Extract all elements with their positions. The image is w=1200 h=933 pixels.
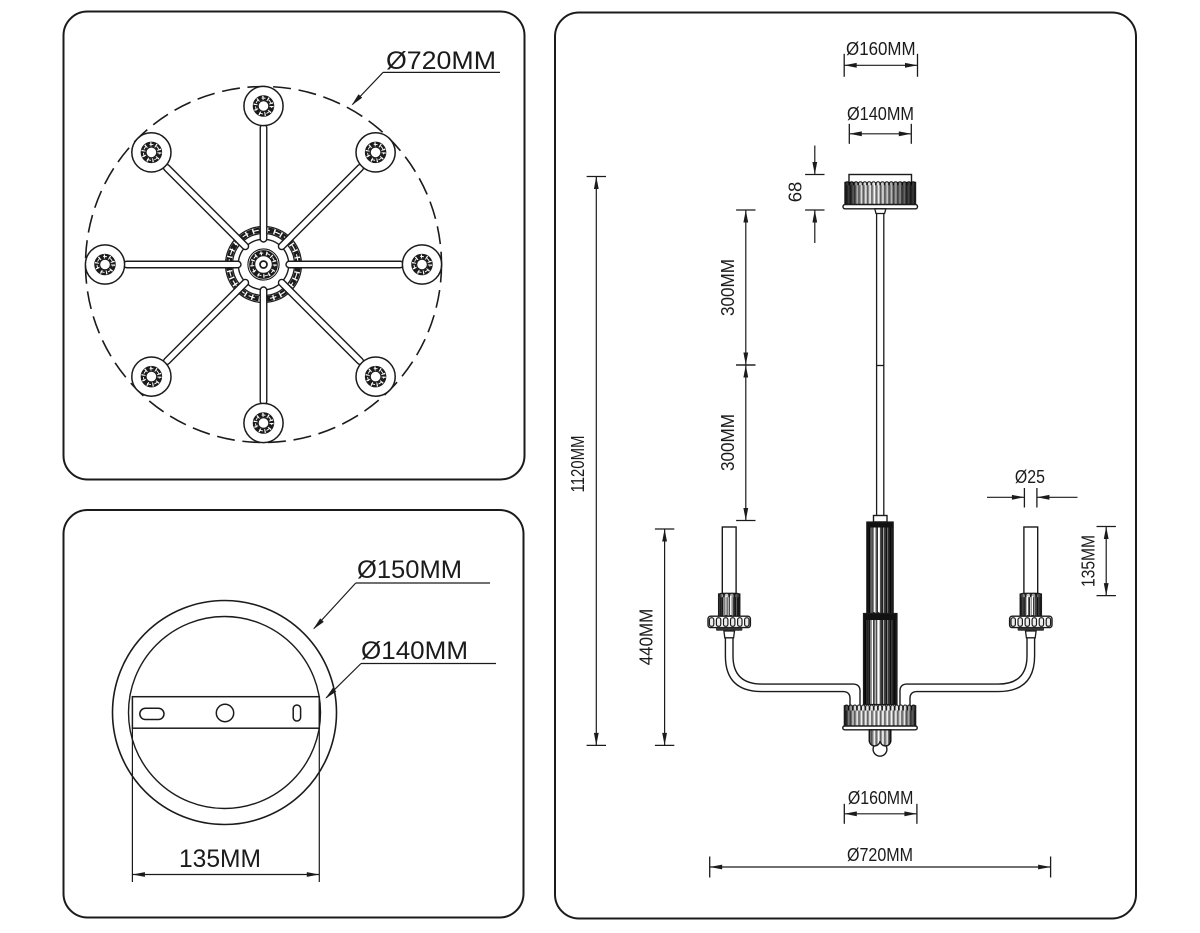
svg-text:Ø150MM: Ø150MM	[357, 556, 462, 584]
svg-text:Ø720MM: Ø720MM	[847, 844, 913, 865]
svg-text:135MM: 135MM	[1077, 535, 1098, 587]
svg-text:1120MM: 1120MM	[567, 436, 588, 493]
svg-text:300MM: 300MM	[717, 414, 738, 471]
svg-text:Ø720MM: Ø720MM	[386, 47, 496, 75]
svg-text:Ø160MM: Ø160MM	[846, 38, 916, 59]
svg-text:Ø140MM: Ø140MM	[361, 637, 468, 665]
svg-text:Ø140MM: Ø140MM	[847, 103, 914, 124]
svg-text:440MM: 440MM	[635, 609, 656, 666]
svg-text:Ø25: Ø25	[1015, 466, 1045, 487]
svg-text:68: 68	[785, 182, 806, 203]
svg-text:300MM: 300MM	[717, 259, 738, 316]
svg-text:Ø160MM: Ø160MM	[848, 787, 914, 808]
svg-text:135MM: 135MM	[179, 845, 261, 873]
